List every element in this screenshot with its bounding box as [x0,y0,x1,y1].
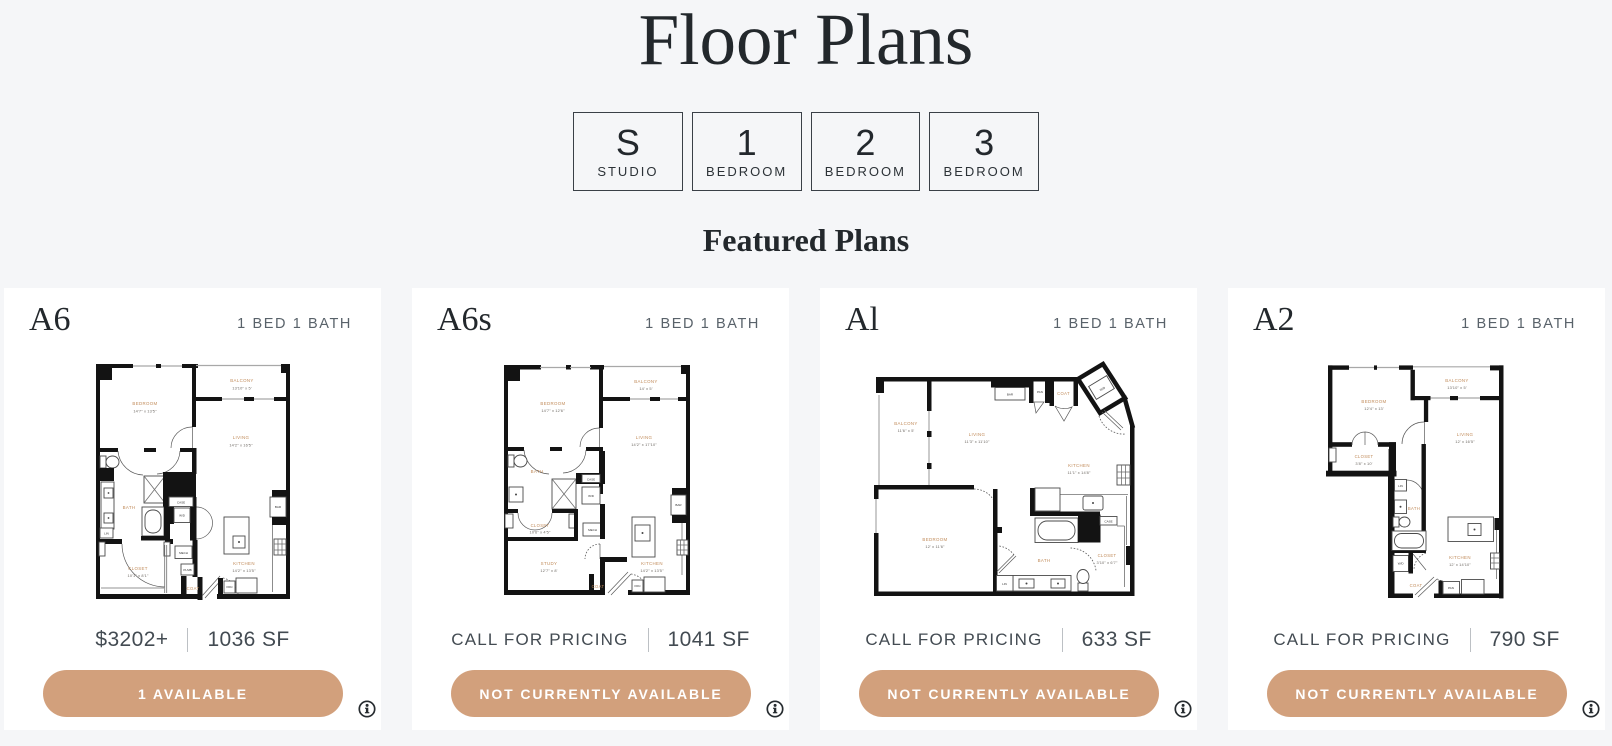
svg-text:14'2" x 17'10": 14'2" x 17'10" [631,442,657,447]
svg-text:BAR: BAR [275,505,282,509]
svg-text:PAN: PAN [227,585,233,589]
svg-text:BATH: BATH [1038,558,1051,563]
svg-text:PLMB: PLMB [183,568,191,572]
svg-text:KITCHEN: KITCHEN [641,561,663,566]
svg-text:LIN: LIN [1398,484,1403,488]
svg-text:BALCONY: BALCONY [230,378,253,383]
svg-text:W/D: W/D [179,514,186,518]
svg-text:BATH: BATH [531,469,544,474]
svg-text:BALCONY: BALCONY [1445,378,1468,383]
svg-text:BAR: BAR [1007,393,1014,397]
svg-text:10'1" x 8'1": 10'1" x 8'1" [128,573,149,578]
svg-text:KITCHEN: KITCHEN [1449,555,1471,560]
svg-text:LIVING: LIVING [233,435,250,440]
svg-text:KITCHEN: KITCHEN [1068,463,1090,468]
svg-text:COAT: COAT [1057,391,1070,396]
svg-text:W/D: W/D [1398,562,1405,566]
svg-text:STUDY: STUDY [541,561,558,566]
svg-text:MECH: MECH [179,551,188,555]
svg-text:12' x 11'6": 12' x 11'6" [925,544,945,549]
svg-text:13'10" x 5': 13'10" x 5' [232,386,252,391]
svg-text:12' x 16'5": 12' x 16'5" [1455,439,1475,444]
svg-text:BAR: BAR [675,503,682,507]
svg-text:PAN: PAN [1448,586,1454,590]
svg-text:12' x 14'10": 12' x 14'10" [1449,562,1471,567]
svg-text:10'6" x 4'5": 10'6" x 4'5" [530,530,551,535]
svg-text:14'2" x 13'5": 14'2" x 13'5" [232,568,256,573]
svg-text:11'3" x 11'10": 11'3" x 11'10" [964,439,989,444]
svg-text:14'2" x 13'5": 14'2" x 13'5" [640,568,664,573]
svg-text:LIVING: LIVING [1457,432,1474,437]
svg-text:CLOSET: CLOSET [1355,454,1374,459]
svg-text:14'7" x 13'5": 14'7" x 13'5" [133,409,157,414]
svg-text:PAN: PAN [635,584,641,588]
svg-text:KITCHEN: KITCHEN [233,561,255,566]
svg-text:COAT: COAT [187,586,200,591]
svg-text:LIVING: LIVING [636,435,653,440]
svg-text:CLOSET: CLOSET [1098,553,1117,558]
svg-text:11'1" x 14'8": 11'1" x 14'8" [1068,470,1091,475]
svg-text:BALCONY: BALCONY [894,421,917,426]
svg-text:13'10" x 5': 13'10" x 5' [1447,385,1467,390]
svg-text:CLOSET: CLOSET [531,523,550,528]
svg-text:14'7" x 12'6": 14'7" x 12'6" [541,408,565,413]
svg-text:BALCONY: BALCONY [634,379,657,384]
svg-text:CASE: CASE [1104,520,1112,524]
svg-text:11'6" x 5': 11'6" x 5' [898,428,915,433]
svg-text:PAN: PAN [1037,390,1043,394]
svg-text:CASE: CASE [177,501,185,505]
svg-text:W/D: W/D [588,494,595,498]
svg-text:BATH: BATH [123,505,136,510]
svg-text:MECH: MECH [588,528,597,532]
svg-text:CLOSET: CLOSET [128,566,148,571]
svg-text:LIN: LIN [1002,582,1007,586]
svg-text:COAT: COAT [1410,583,1423,588]
svg-text:12'7" x 8': 12'7" x 8' [540,568,557,573]
svg-text:14'2" x 16'5": 14'2" x 16'5" [229,443,253,448]
svg-text:CASE: CASE [587,478,595,482]
svg-text:LIVING: LIVING [969,432,986,437]
svg-text:14' x 5': 14' x 5' [639,386,652,391]
svg-text:3'8" x 10': 3'8" x 10' [1355,461,1372,466]
svg-text:BEDROOM: BEDROOM [1361,399,1386,404]
svg-text:3'10" x 6'7": 3'10" x 6'7" [1097,560,1118,565]
svg-text:BEDROOM: BEDROOM [922,537,947,542]
svg-text:12'4" x 13': 12'4" x 13' [1364,406,1384,411]
svg-text:LIN: LIN [104,532,109,536]
svg-text:BATH: BATH [1408,506,1420,511]
svg-text:BEDROOM: BEDROOM [540,401,565,406]
svg-text:BEDROOM: BEDROOM [132,401,157,406]
svg-text:COAT: COAT [592,584,605,589]
